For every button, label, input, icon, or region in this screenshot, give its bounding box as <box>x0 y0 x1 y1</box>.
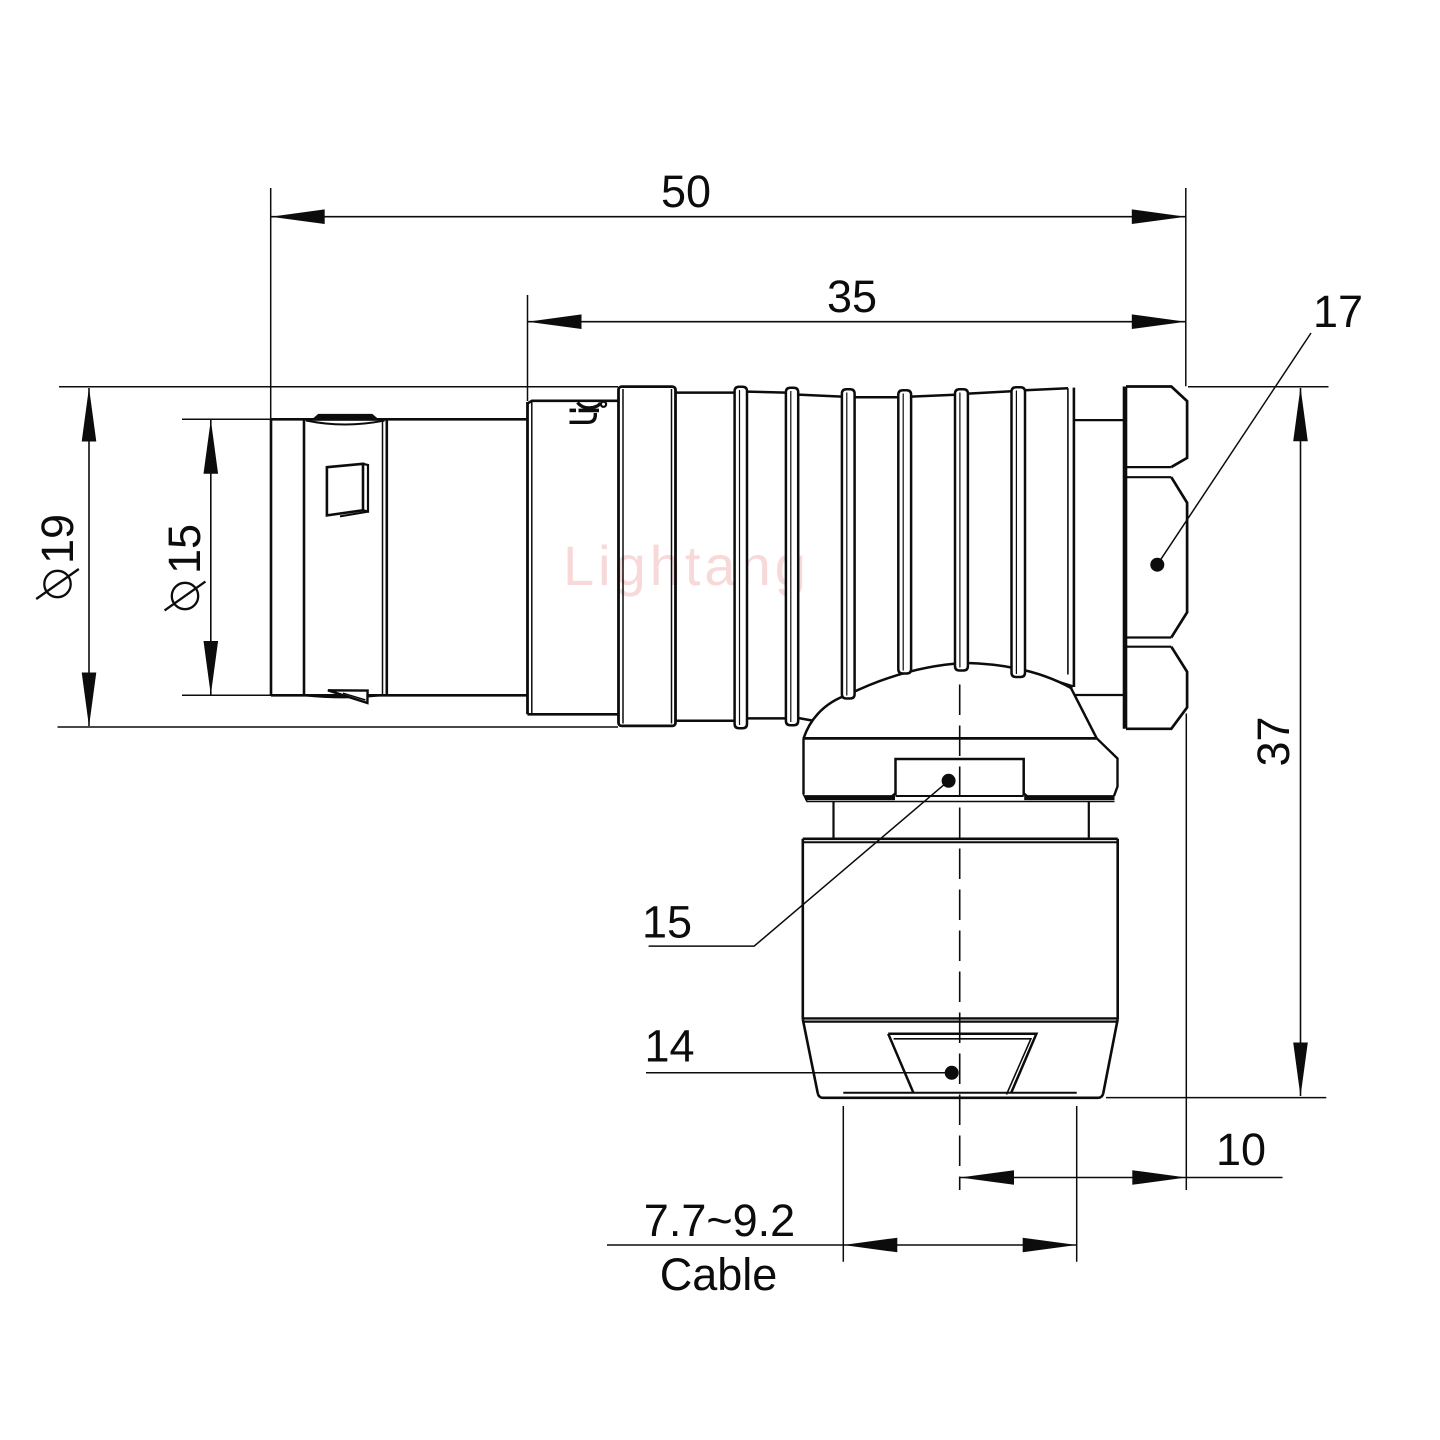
svg-text:15: 15 <box>159 524 210 574</box>
svg-text:10: 10 <box>1216 1124 1266 1175</box>
svg-text:37: 37 <box>1248 716 1299 766</box>
svg-text:19: 19 <box>32 514 83 564</box>
svg-text:Lightang: Lightang <box>563 534 810 597</box>
svg-text:Cable: Cable <box>660 1249 778 1300</box>
svg-text:15: 15 <box>642 897 692 948</box>
svg-text:35: 35 <box>827 271 877 322</box>
svg-text:50: 50 <box>661 166 711 217</box>
svg-text:17: 17 <box>1313 286 1363 337</box>
svg-text:14: 14 <box>644 1021 694 1072</box>
svg-text:7.7~9.2: 7.7~9.2 <box>644 1195 795 1246</box>
